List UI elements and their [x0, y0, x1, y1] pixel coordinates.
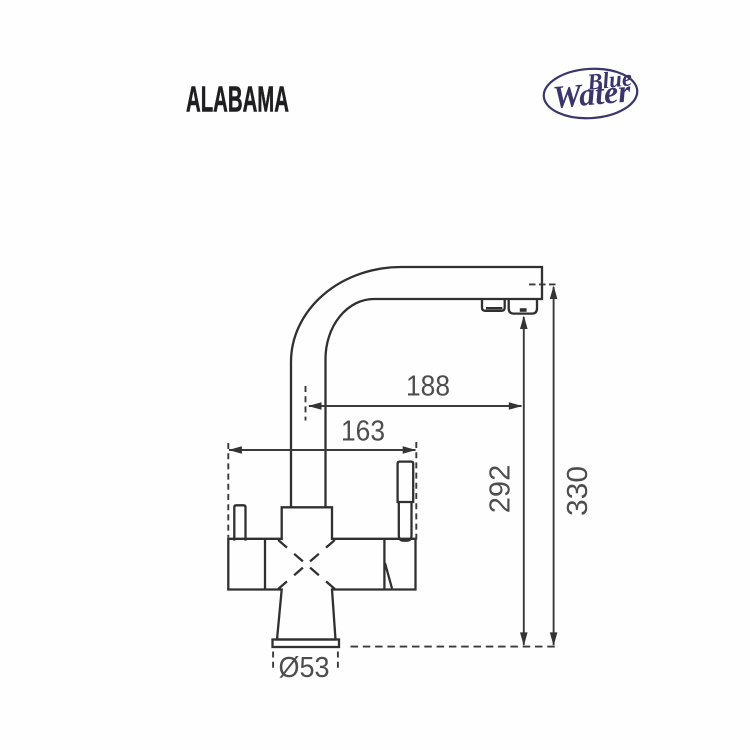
- svg-text:188: 188: [406, 371, 450, 403]
- svg-text:163: 163: [341, 415, 385, 447]
- svg-text:ALABAMA: ALABAMA: [186, 79, 289, 120]
- svg-text:Ø53: Ø53: [279, 652, 330, 684]
- svg-text:330: 330: [562, 466, 594, 516]
- svg-text:292: 292: [485, 465, 517, 514]
- svg-text:Water: Water: [551, 72, 632, 115]
